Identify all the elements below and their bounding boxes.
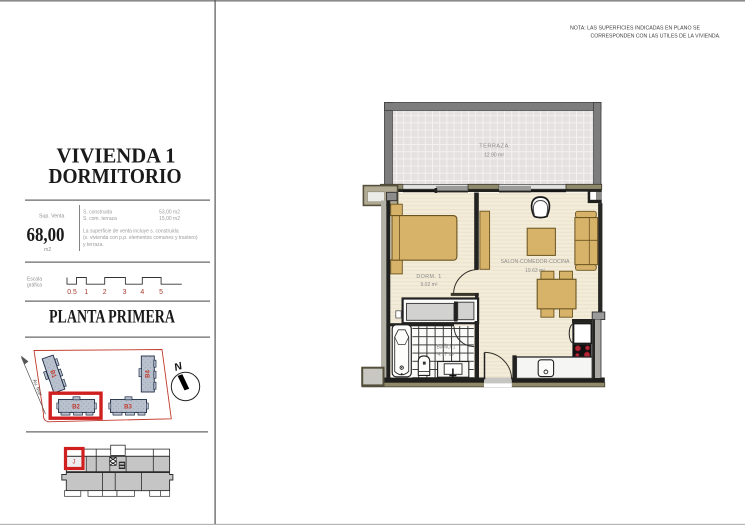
- svg-text:Av. Mar: Av. Mar: [31, 378, 43, 397]
- svg-text:NOTA: LAS SUPERFICIES INDICAD: NOTA: LAS SUPERFICIES INDICADAS EN PLANO…: [570, 26, 700, 32]
- svg-text:15,00 m2: 15,00 m2: [159, 216, 180, 222]
- svg-text:12.90 m²: 12.90 m²: [484, 153, 504, 159]
- svg-text:B4: B4: [146, 370, 152, 378]
- svg-text:(s. vivienda con p.p. elemento: (s. vivienda con p.p. elementos comunes …: [83, 235, 198, 241]
- svg-text:CORRESPONDEN CON LAS UTILES DE: CORRESPONDEN CON LAS UTILES DE LA VIVIEN…: [591, 34, 721, 40]
- svg-text:5: 5: [159, 289, 163, 296]
- svg-text:1: 1: [84, 289, 88, 296]
- svg-text:B3: B3: [124, 405, 132, 411]
- svg-text:y terraza.: y terraza.: [83, 242, 104, 248]
- svg-text:TERRAZA: TERRAZA: [479, 144, 509, 150]
- svg-text:53,00 m2: 53,00 m2: [159, 210, 180, 216]
- svg-text:SALON-COMEDOR-COCINA: SALON-COMEDOR-COCINA: [501, 259, 570, 265]
- svg-text:gráfica: gráfica: [27, 283, 42, 289]
- svg-text:PLANTA PRIMERA: PLANTA PRIMERA: [49, 308, 175, 328]
- svg-text:BAÑO 1: BAÑO 1: [436, 344, 455, 351]
- svg-text:B2: B2: [72, 405, 80, 411]
- svg-text:3: 3: [123, 289, 127, 296]
- svg-text:S. construida: S. construida: [83, 210, 112, 216]
- svg-text:4.17 m²: 4.17 m²: [438, 352, 455, 358]
- svg-text:9.02 m²: 9.02 m²: [421, 282, 438, 288]
- svg-text:4: 4: [140, 289, 144, 296]
- svg-text:N: N: [173, 360, 184, 374]
- svg-text:DORM. 1: DORM. 1: [416, 274, 441, 280]
- svg-text:Sup. Venta: Sup. Venta: [39, 214, 64, 220]
- svg-text:Escala: Escala: [27, 277, 42, 283]
- svg-text:2: 2: [103, 289, 107, 296]
- svg-text:S. com. terraza: S. com. terraza: [83, 216, 117, 222]
- svg-text:0.5: 0.5: [67, 289, 77, 296]
- svg-text:J: J: [73, 460, 76, 466]
- svg-text:68,00: 68,00: [27, 225, 65, 246]
- svg-text:La superficie de venta incl: La superficie de venta incluye s. constr…: [83, 229, 179, 235]
- svg-text:m2: m2: [44, 247, 51, 253]
- svg-text:DORMITORIO: DORMITORIO: [49, 164, 182, 188]
